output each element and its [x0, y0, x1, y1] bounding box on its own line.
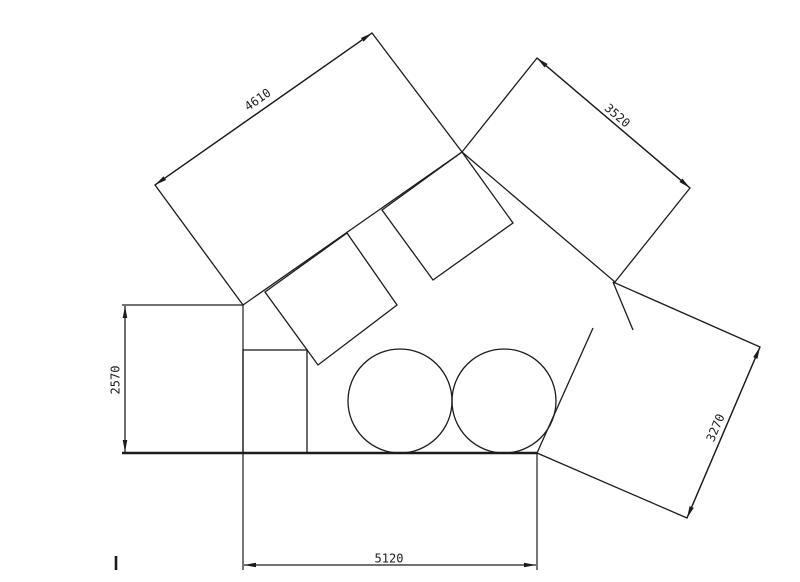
drawing-page: 46103520327025705120 [0, 0, 800, 582]
dimension-4610-label: 4610 [242, 86, 274, 114]
cad-drawing: 46103520327025705120 [0, 0, 800, 582]
small-rotated-square-right [382, 152, 513, 280]
dimension-layer: 46103520327025705120 [109, 33, 761, 566]
dimension-3520-line [537, 58, 690, 188]
dimension-3270-label: 3270 [703, 412, 727, 444]
dimension-2570-label: 2570 [109, 366, 123, 395]
large-rotated-rect-top-left [155, 33, 462, 305]
dimension-4610: 4610 [155, 33, 372, 185]
small-rectangle-on-ground [243, 350, 307, 453]
small-rotated-square-left [265, 233, 397, 365]
dimension-3270: 3270 [687, 347, 760, 518]
dimension-5120: 5120 [244, 552, 536, 566]
dimension-3520: 3520 [537, 58, 690, 188]
dimension-3270-line [687, 347, 760, 518]
dimension-4610-line [155, 33, 372, 185]
dimension-2570: 2570 [109, 306, 126, 452]
circle-right [452, 349, 556, 453]
circle-left [348, 349, 452, 453]
geometry-layer [116, 33, 760, 570]
dimension-5120-label: 5120 [375, 552, 404, 566]
rotated-rect-bottom-right-outline [537, 282, 760, 518]
